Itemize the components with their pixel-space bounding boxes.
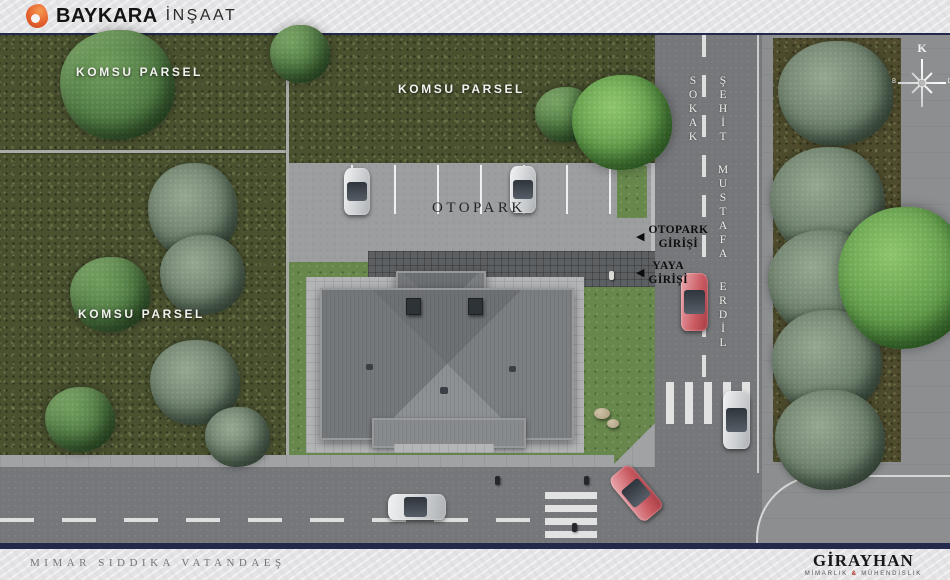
rear-step bbox=[394, 444, 494, 453]
header-bar: BAYKARA İNŞAAT bbox=[0, 0, 950, 33]
parked-car bbox=[344, 168, 370, 215]
architect-credit: MIMAR SIDDIKA VATANDAEŞ bbox=[30, 557, 286, 569]
landscape-rock bbox=[594, 408, 610, 419]
brand-logo: BAYKARA İNŞAAT bbox=[26, 4, 237, 28]
tree bbox=[775, 390, 885, 490]
parking-entrance-line2: GİRİŞİ bbox=[648, 237, 708, 251]
pedestrian bbox=[495, 476, 500, 485]
roof-vent bbox=[509, 366, 516, 372]
parcel-label-left-top: KOMSU PARSEL bbox=[76, 65, 203, 79]
roof-vent bbox=[440, 387, 448, 394]
parcel-label-left-bottom: KOMSU PARSEL bbox=[78, 307, 205, 321]
parcel-label-middle: KOMSU PARSEL bbox=[398, 82, 525, 96]
pedestrian-entrance-line1: YAYA bbox=[648, 259, 687, 273]
crosswalk-horizontal-road bbox=[545, 492, 597, 543]
pedestrian-entrance-label: ◀ YAYA GİRİŞİ bbox=[636, 259, 688, 288]
parking-entrance-label: ◀ OTOPARK GİRİŞİ bbox=[636, 223, 708, 252]
parcel-divider-horizontal bbox=[0, 150, 288, 153]
compass-west-label: B bbox=[892, 79, 896, 85]
chimney bbox=[406, 298, 421, 315]
tree bbox=[778, 41, 893, 146]
compass-rose bbox=[898, 59, 946, 107]
footer-bar: MIMAR SIDDIKA VATANDAEŞ GİRAYHAN MİMARLI… bbox=[0, 549, 950, 580]
pedestrian bbox=[572, 523, 577, 532]
parking-entrance-line1: OTOPARK bbox=[648, 223, 708, 237]
compass-north-label: K bbox=[894, 41, 950, 56]
tree bbox=[45, 387, 115, 452]
site-plan-render: ŞEHİT MUSTAFA ERDİL SOKAK bbox=[0, 35, 950, 543]
tree bbox=[205, 407, 270, 467]
parking-label: OTOPARK bbox=[432, 200, 526, 217]
site-plan-page: BAYKARA İNŞAAT bbox=[0, 0, 950, 580]
street-horizontal-center-line bbox=[0, 518, 545, 522]
pedestrian-entrance-line2: GİRİŞİ bbox=[648, 273, 687, 287]
chimney bbox=[468, 298, 483, 315]
tree bbox=[572, 75, 672, 170]
firm-subtitle-amp: & bbox=[852, 571, 858, 577]
pedestrian bbox=[584, 476, 589, 485]
firm-subtitle: MİMARLIK & MÜHENDİSLİK bbox=[805, 571, 922, 577]
tree bbox=[160, 235, 245, 315]
landscape-rock bbox=[607, 419, 619, 428]
tree bbox=[60, 30, 175, 140]
firm-subtitle-right: MÜHENDİSLİK bbox=[861, 571, 922, 577]
firm-subtitle-left: MİMARLIK bbox=[805, 571, 848, 577]
left-arrow-icon: ◀ bbox=[636, 268, 644, 279]
compass-icon: K B D bbox=[894, 41, 950, 125]
street-name-label: ŞEHİT MUSTAFA ERDİL SOKAK bbox=[708, 75, 738, 375]
roof-vent bbox=[366, 364, 373, 370]
firm-name: GİRAYHAN bbox=[805, 552, 922, 570]
brand-suffix: İNŞAAT bbox=[166, 7, 238, 25]
pedestrian bbox=[609, 271, 614, 280]
white-car-horizontal-road bbox=[388, 494, 446, 520]
brand-name: BAYKARA bbox=[56, 5, 158, 28]
tree bbox=[270, 25, 330, 83]
left-arrow-icon: ◀ bbox=[636, 232, 644, 243]
firm-logo: GİRAYHAN MİMARLIK & MÜHENDİSLİK bbox=[805, 552, 922, 577]
white-car-vertical-road bbox=[723, 391, 750, 449]
parking-green-patch bbox=[617, 166, 647, 218]
baykara-logo-icon bbox=[26, 4, 48, 28]
